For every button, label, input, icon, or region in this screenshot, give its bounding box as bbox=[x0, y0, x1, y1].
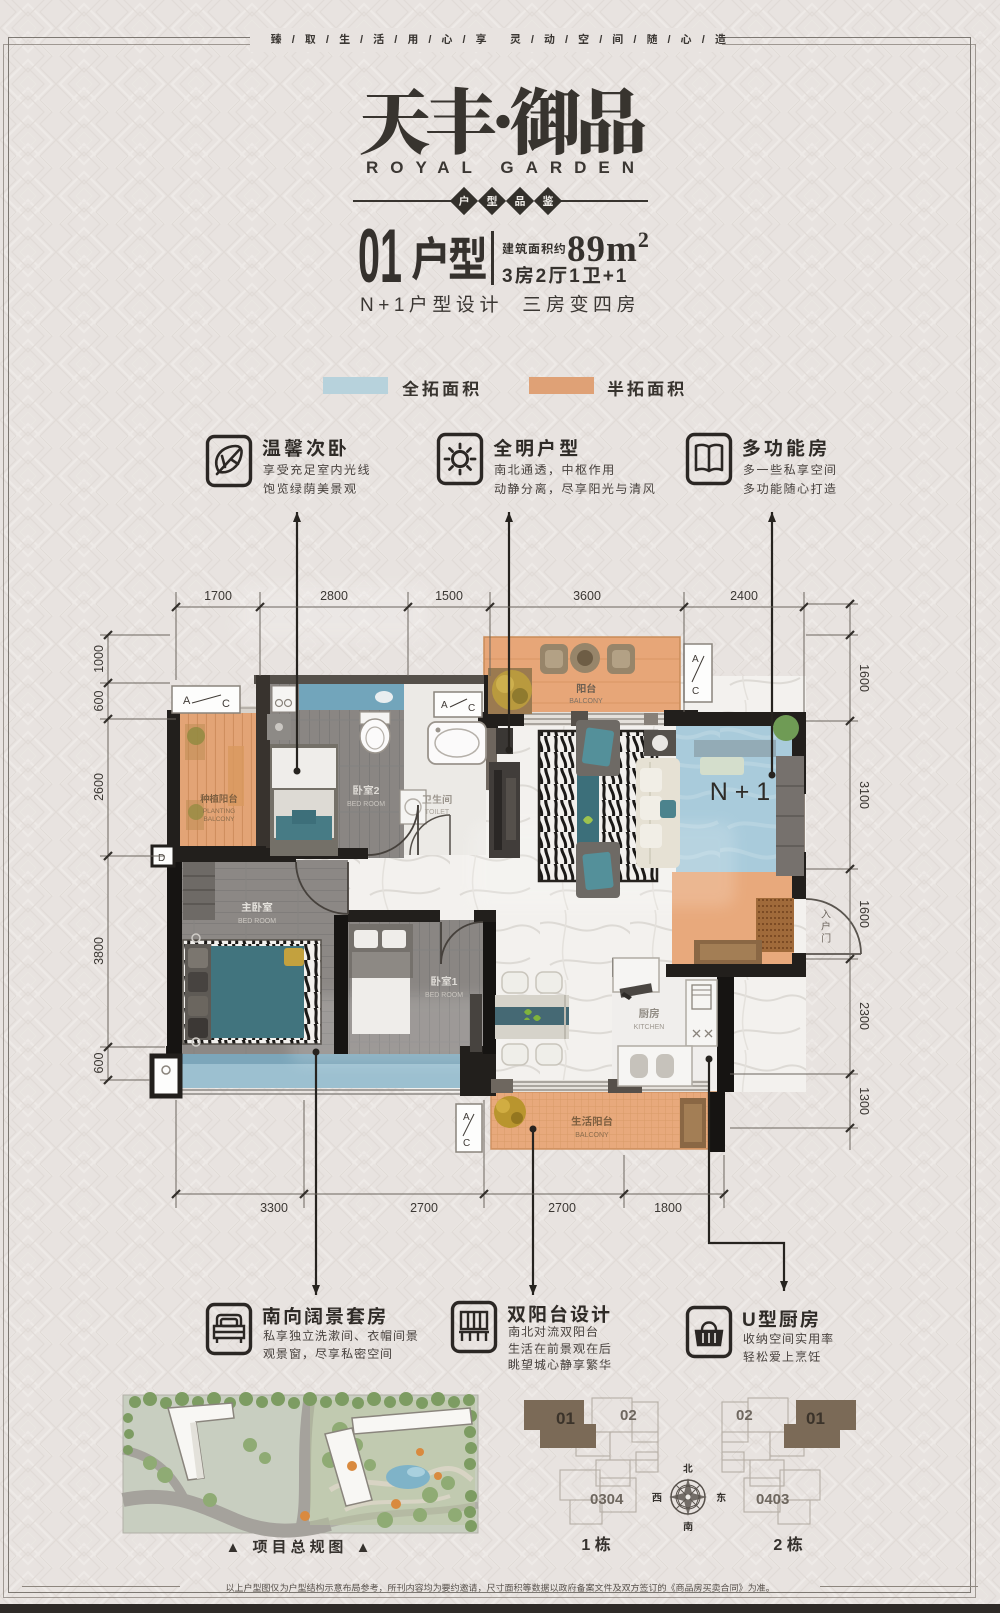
svg-text:BALCONY: BALCONY bbox=[575, 1130, 609, 1140]
svg-text:阳台: 阳台 bbox=[576, 680, 596, 695]
svg-text:1500: 1500 bbox=[435, 585, 463, 604]
svg-text:TOILET: TOILET bbox=[425, 807, 450, 817]
svg-text:卧室1: 卧室1 bbox=[431, 974, 458, 989]
svg-text:东: 东 bbox=[716, 1489, 726, 1504]
svg-text:▲ 项目总规图 ▲: ▲ 项目总规图 ▲ bbox=[225, 1536, 374, 1557]
svg-text:2 栋: 2 栋 bbox=[773, 1531, 802, 1555]
svg-text:1600: 1600 bbox=[856, 664, 875, 692]
svg-text:2800: 2800 bbox=[320, 585, 348, 604]
svg-text:1000: 1000 bbox=[88, 645, 107, 673]
svg-text:BED ROOM: BED ROOM bbox=[347, 799, 385, 809]
svg-text:C: C bbox=[463, 1134, 470, 1149]
svg-text:0403: 0403 bbox=[756, 1488, 789, 1509]
svg-text:BED ROOM: BED ROOM bbox=[425, 990, 463, 1000]
svg-text:2700: 2700 bbox=[410, 1197, 438, 1216]
svg-text:1700: 1700 bbox=[204, 585, 232, 604]
svg-text:1600: 1600 bbox=[856, 900, 875, 928]
svg-text:600: 600 bbox=[88, 691, 107, 712]
svg-text:1800: 1800 bbox=[654, 1197, 682, 1216]
svg-text:N + 1: N + 1 bbox=[710, 772, 770, 808]
svg-text:主卧室: 主卧室 bbox=[241, 900, 273, 915]
svg-text:3100: 3100 bbox=[856, 781, 875, 809]
svg-text:BED ROOM: BED ROOM bbox=[238, 916, 276, 926]
svg-text:2400: 2400 bbox=[730, 585, 758, 604]
svg-text:3600: 3600 bbox=[573, 585, 601, 604]
svg-text:1300: 1300 bbox=[856, 1087, 875, 1115]
svg-text:KITCHEN: KITCHEN bbox=[634, 1022, 665, 1032]
svg-text:600: 600 bbox=[88, 1053, 107, 1074]
svg-text:A: A bbox=[463, 1108, 470, 1123]
svg-text:3800: 3800 bbox=[88, 937, 107, 965]
svg-text:卧室2: 卧室2 bbox=[353, 783, 380, 798]
svg-text:BALCONY: BALCONY bbox=[203, 813, 235, 823]
svg-text:A: A bbox=[441, 696, 448, 711]
svg-text:A: A bbox=[183, 692, 191, 708]
svg-text:C: C bbox=[692, 682, 699, 697]
svg-text:02: 02 bbox=[620, 1404, 637, 1425]
svg-text:2600: 2600 bbox=[88, 773, 107, 801]
svg-text:01: 01 bbox=[806, 1404, 825, 1429]
svg-text:2700: 2700 bbox=[548, 1197, 576, 1216]
svg-text:3300: 3300 bbox=[260, 1197, 288, 1216]
svg-text:01: 01 bbox=[556, 1404, 575, 1429]
svg-text:入户门: 入户门 bbox=[819, 908, 834, 944]
svg-text:C: C bbox=[222, 695, 230, 711]
svg-text:西: 西 bbox=[652, 1489, 662, 1504]
svg-text:厨房: 厨房 bbox=[639, 1006, 660, 1021]
svg-text:种植阳台: 种植阳台 bbox=[200, 791, 239, 805]
svg-text:2300: 2300 bbox=[856, 1002, 875, 1030]
svg-text:BALCONY: BALCONY bbox=[569, 696, 603, 706]
svg-text:卫生间: 卫生间 bbox=[422, 791, 452, 806]
svg-text:北: 北 bbox=[683, 1460, 694, 1475]
svg-text:1 栋: 1 栋 bbox=[581, 1531, 610, 1555]
svg-text:A: A bbox=[692, 650, 699, 665]
svg-text:生活阳台: 生活阳台 bbox=[571, 1114, 613, 1129]
svg-text:南: 南 bbox=[683, 1518, 693, 1533]
svg-text:C: C bbox=[468, 699, 475, 714]
svg-text:02: 02 bbox=[736, 1404, 753, 1425]
svg-text:0304: 0304 bbox=[590, 1488, 624, 1509]
